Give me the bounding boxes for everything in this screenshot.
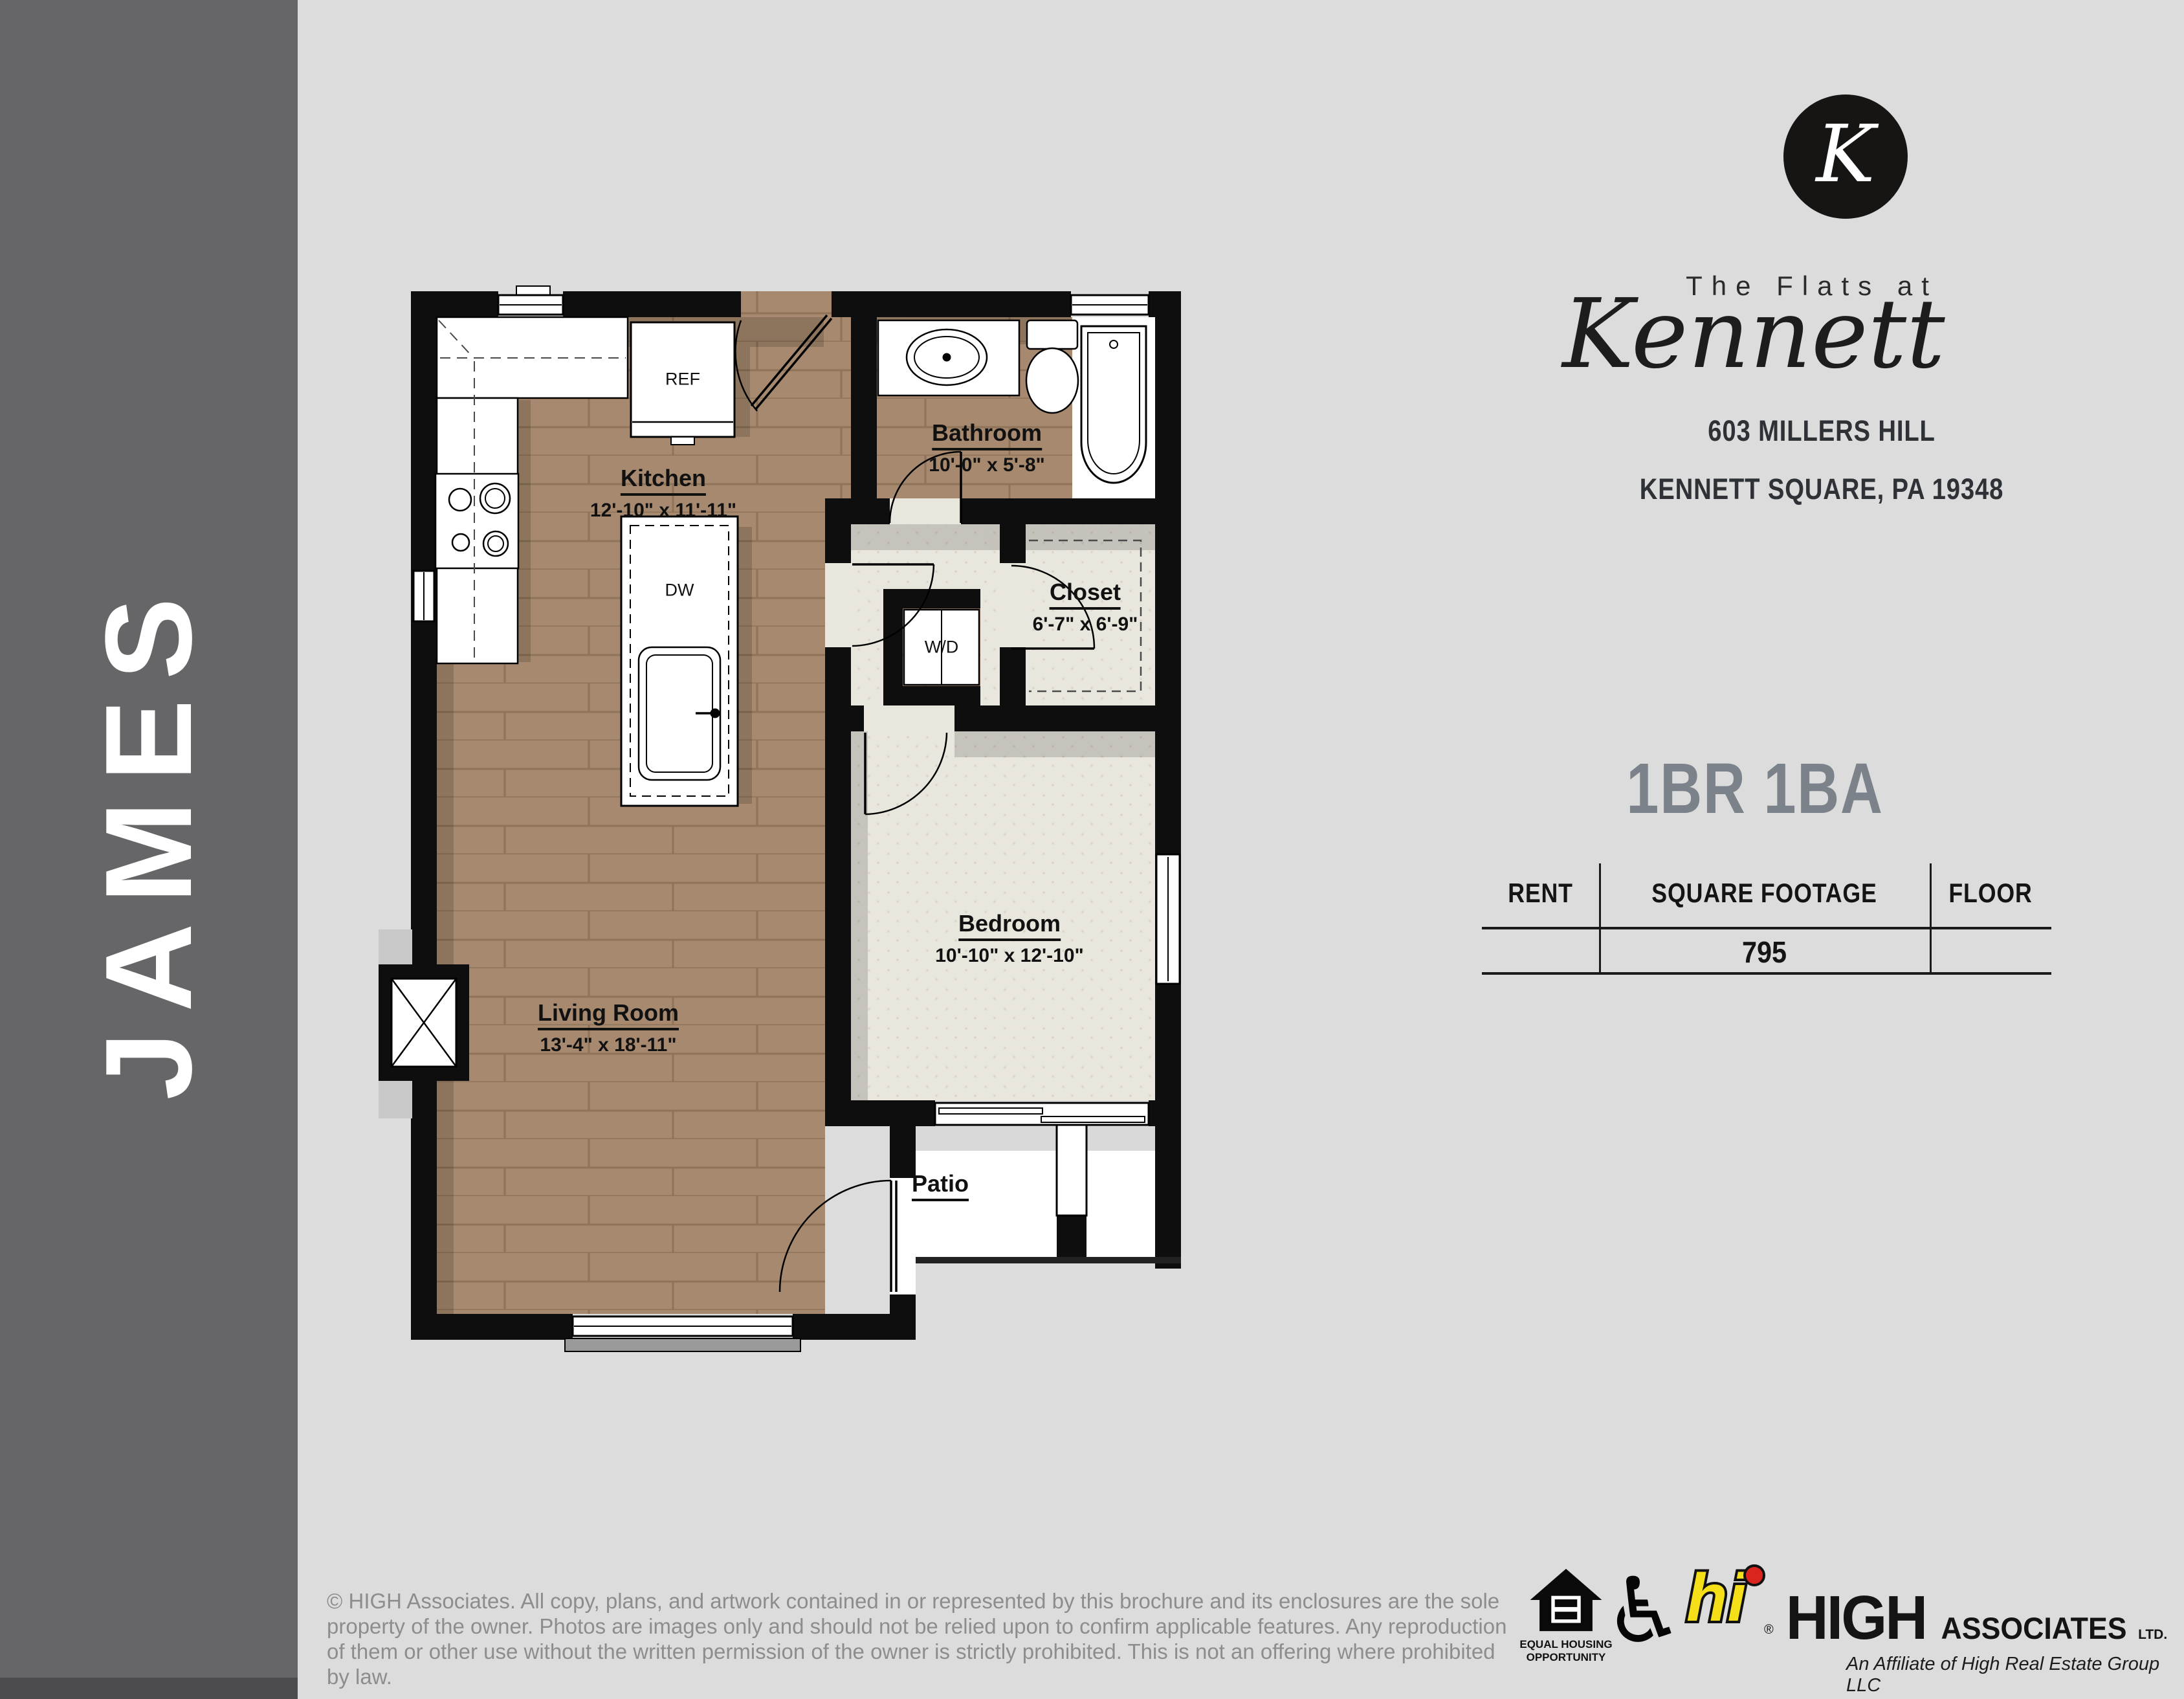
equal-housing-house-icon [1527, 1568, 1605, 1632]
high-suffix: ASSOCIATES [1941, 1610, 2127, 1646]
brand-monogram: K [1816, 108, 1875, 200]
window-sill [565, 1338, 800, 1351]
patio-name: Patio [912, 1170, 969, 1201]
dw-label: DW [665, 581, 694, 601]
bath-door-threshold [890, 498, 961, 524]
plan-name-vertical: JAMES [0, 0, 298, 1678]
bedroom-door-threshold [864, 705, 954, 731]
high-red-dot [1745, 1566, 1764, 1585]
table-bottom-rule [1482, 972, 2051, 975]
bathroom-dims: 10'-0" x 5'-8" [929, 454, 1044, 476]
unit-type-heading: 1BR 1BA [1569, 748, 1941, 830]
patio-label: Patio [912, 1170, 969, 1201]
sidebar-bottom-strip [0, 1678, 298, 1699]
table-value-square-footage: 795 [1616, 935, 1914, 970]
sidebar: JAMES [0, 0, 298, 1699]
bathroom-name: Bathroom [932, 419, 1042, 450]
kitchen-window-bump [516, 286, 550, 295]
brand-address-line1: 603 MILLERS HILL [1629, 414, 2014, 448]
closet-door-threshold [1000, 563, 1026, 647]
closet-label: Closet 6'-7" x 6'-9" [1033, 579, 1138, 636]
ref-label: REF [665, 370, 700, 390]
table-header-rule [1482, 927, 2051, 929]
accessibility-icon: ♿ [1604, 1559, 1685, 1664]
high-associates-logo: hi ® HIGH ASSOCIATES LTD. An Affiliate o… [1681, 1561, 2184, 1696]
closet-dims: 6'-7" x 6'-9" [1033, 614, 1138, 636]
kitchen-label: Kitchen 12'-10" x 11'-11" [590, 465, 736, 522]
high-affiliate-line: An Affiliate of High Real Estate Group L… [1846, 1654, 2184, 1696]
bathroom-label: Bathroom 10'-0" x 5'-8" [929, 419, 1044, 476]
bedroom-label: Bedroom 10'-10" x 12'-10" [935, 910, 1084, 967]
floorplan-drawing [379, 285, 1220, 1359]
high-hi-mark: hi ® [1681, 1561, 1778, 1639]
high-name: HIGH [1786, 1582, 1926, 1654]
brand-logo: K [1783, 94, 1908, 219]
wd-label: W/D [925, 638, 958, 658]
plan-name-text: JAMES [78, 578, 219, 1100]
living-room-name: Living Room [538, 999, 679, 1030]
table-header-square-footage: SQUARE FOOTAGE [1624, 878, 1904, 909]
table-header-rent: RENT [1491, 878, 1591, 909]
copyright-text: © HIGH Associates. All copy, plans, and … [327, 1589, 1521, 1690]
floorplan: Kitchen 12'-10" x 11'-11" Bathroom 10'-0… [379, 285, 1220, 1359]
patio-post [1057, 1125, 1086, 1216]
bedroom-dims: 10'-10" x 12'-10" [935, 945, 1084, 967]
toilet-tank [1027, 320, 1077, 349]
hall-door-threshold [825, 563, 851, 647]
living-room-label: Living Room 13'-4" x 18'-11" [538, 999, 679, 1056]
bathtub [1081, 326, 1146, 483]
table-header-floor: FLOOR [1939, 878, 2042, 909]
table-divider-vertical-1 [1599, 863, 1601, 975]
brand-address-line2: KENNETT SQUARE, PA 19348 [1629, 472, 2014, 506]
closet-name: Closet [1050, 579, 1121, 610]
brand-script-name: Kennett [1488, 278, 2019, 390]
spec-table: RENT SQUARE FOOTAGE FLOOR 795 [1482, 861, 2051, 977]
brochure-page: JAMES K The Flats at Kennett 603 MILLERS… [0, 0, 2184, 1699]
bedroom-name: Bedroom [958, 910, 1061, 941]
toilet-bowl [1026, 348, 1078, 413]
table-divider-vertical-2 [1930, 863, 1932, 975]
living-room-dims: 13'-4" x 18'-11" [538, 1034, 679, 1056]
high-ltd: LTD. [2138, 1627, 2167, 1643]
floors [437, 291, 1155, 1314]
kitchen-name: Kitchen [621, 465, 706, 496]
entry-threshold [741, 291, 832, 317]
high-hi-text: hi [1686, 1561, 1748, 1636]
foyer-floor [825, 317, 851, 498]
kitchen-dims: 12'-10" x 11'-11" [590, 500, 736, 522]
high-registered-mark: ® [1764, 1623, 1774, 1637]
